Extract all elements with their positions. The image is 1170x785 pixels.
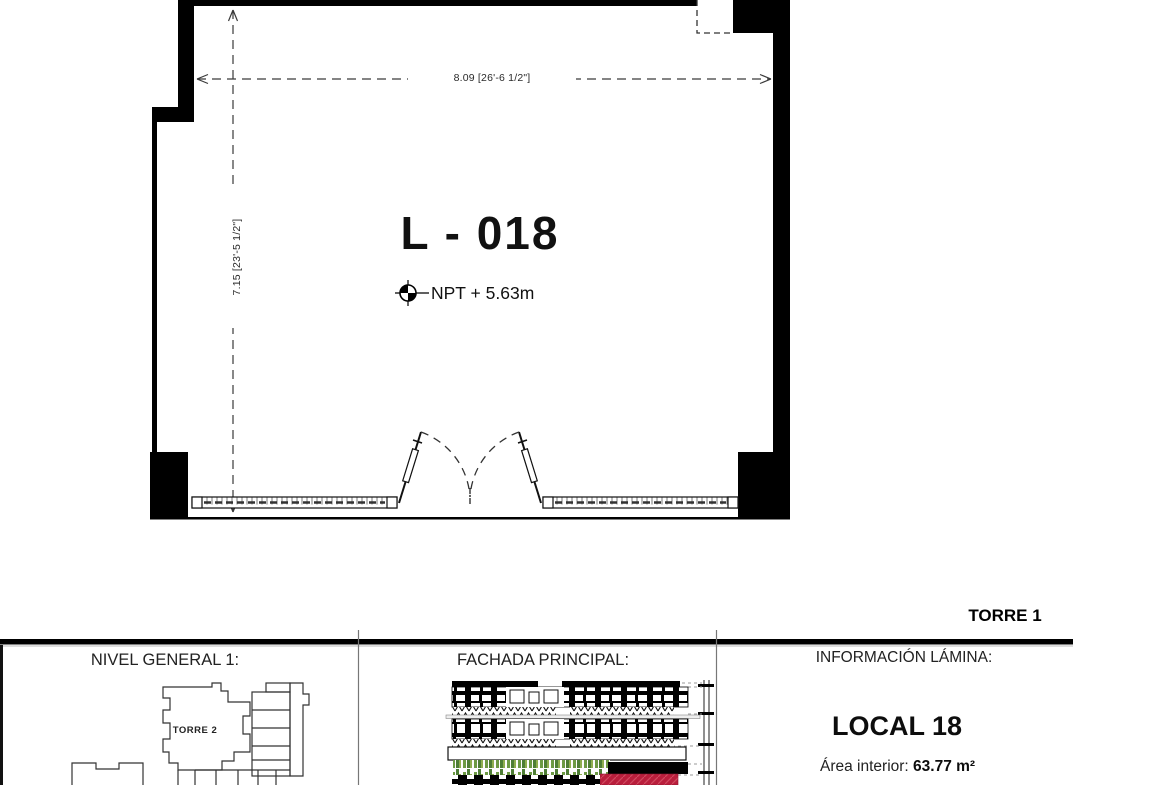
local-highlight-red bbox=[600, 774, 678, 785]
npt-level-text: NPT + 5.63m bbox=[431, 283, 534, 304]
panel-header-informacion: INFORMACIÓN LÁMINA: bbox=[789, 649, 1019, 667]
vegetation-band bbox=[453, 760, 610, 775]
facade-elevation bbox=[446, 680, 714, 785]
keyplan-tower2-label: TORRE 2 bbox=[160, 725, 230, 736]
architectural-sheet: 8.09 [26'-6 1/2"] 7.15 [23'-5 1/2"] L - … bbox=[0, 0, 1170, 785]
storefront-right bbox=[543, 497, 738, 508]
area-label: Área interior: bbox=[820, 758, 913, 775]
level-benchmark-icon bbox=[395, 280, 429, 306]
title-rule bbox=[0, 639, 1073, 647]
area-interior-line: Área interior: 63.77 m² bbox=[820, 758, 975, 776]
level-ticks bbox=[698, 684, 714, 774]
dimension-lines bbox=[197, 10, 771, 512]
panel-header-fachada: FACHADA PRINCIPAL: bbox=[400, 651, 686, 670]
wall-notch-dashed bbox=[697, 0, 733, 33]
room-label: L - 018 bbox=[360, 206, 600, 260]
local-title: LOCAL 18 bbox=[787, 711, 1007, 742]
storefront-left bbox=[192, 497, 397, 508]
door-left bbox=[399, 432, 470, 503]
dimension-vertical-label: 7.15 [23'-5 1/2"] bbox=[231, 186, 243, 328]
tower-title: TORRE 1 bbox=[945, 606, 1065, 626]
panel-header-nivel-general: NIVEL GENERAL 1: bbox=[20, 651, 310, 670]
door-right bbox=[470, 432, 541, 503]
area-value: 63.77 m² bbox=[913, 758, 975, 775]
dimension-horizontal-label: 8.09 [26'-6 1/2"] bbox=[408, 72, 576, 84]
